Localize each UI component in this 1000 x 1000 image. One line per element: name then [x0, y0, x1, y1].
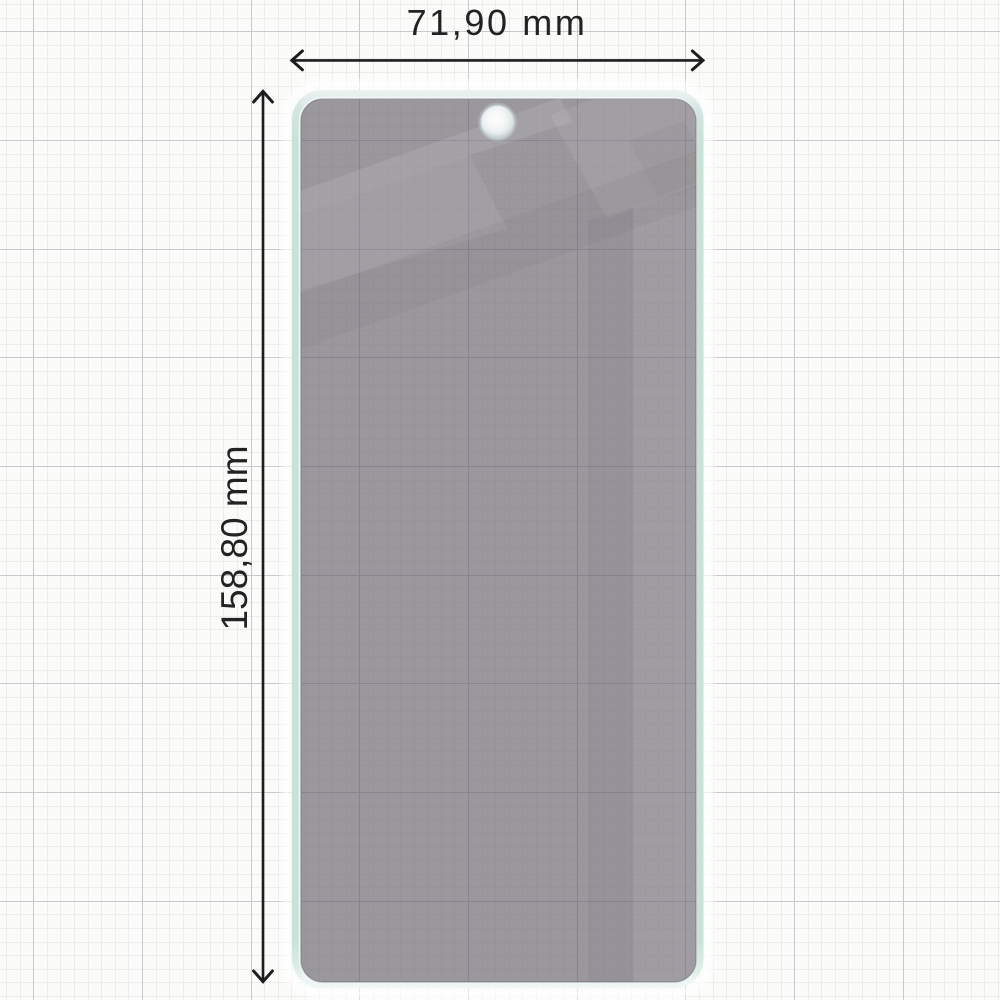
svg-text:71,90 mm: 71,90 mm [407, 2, 588, 43]
svg-text:158,80 mm: 158,80 mm [214, 445, 255, 630]
